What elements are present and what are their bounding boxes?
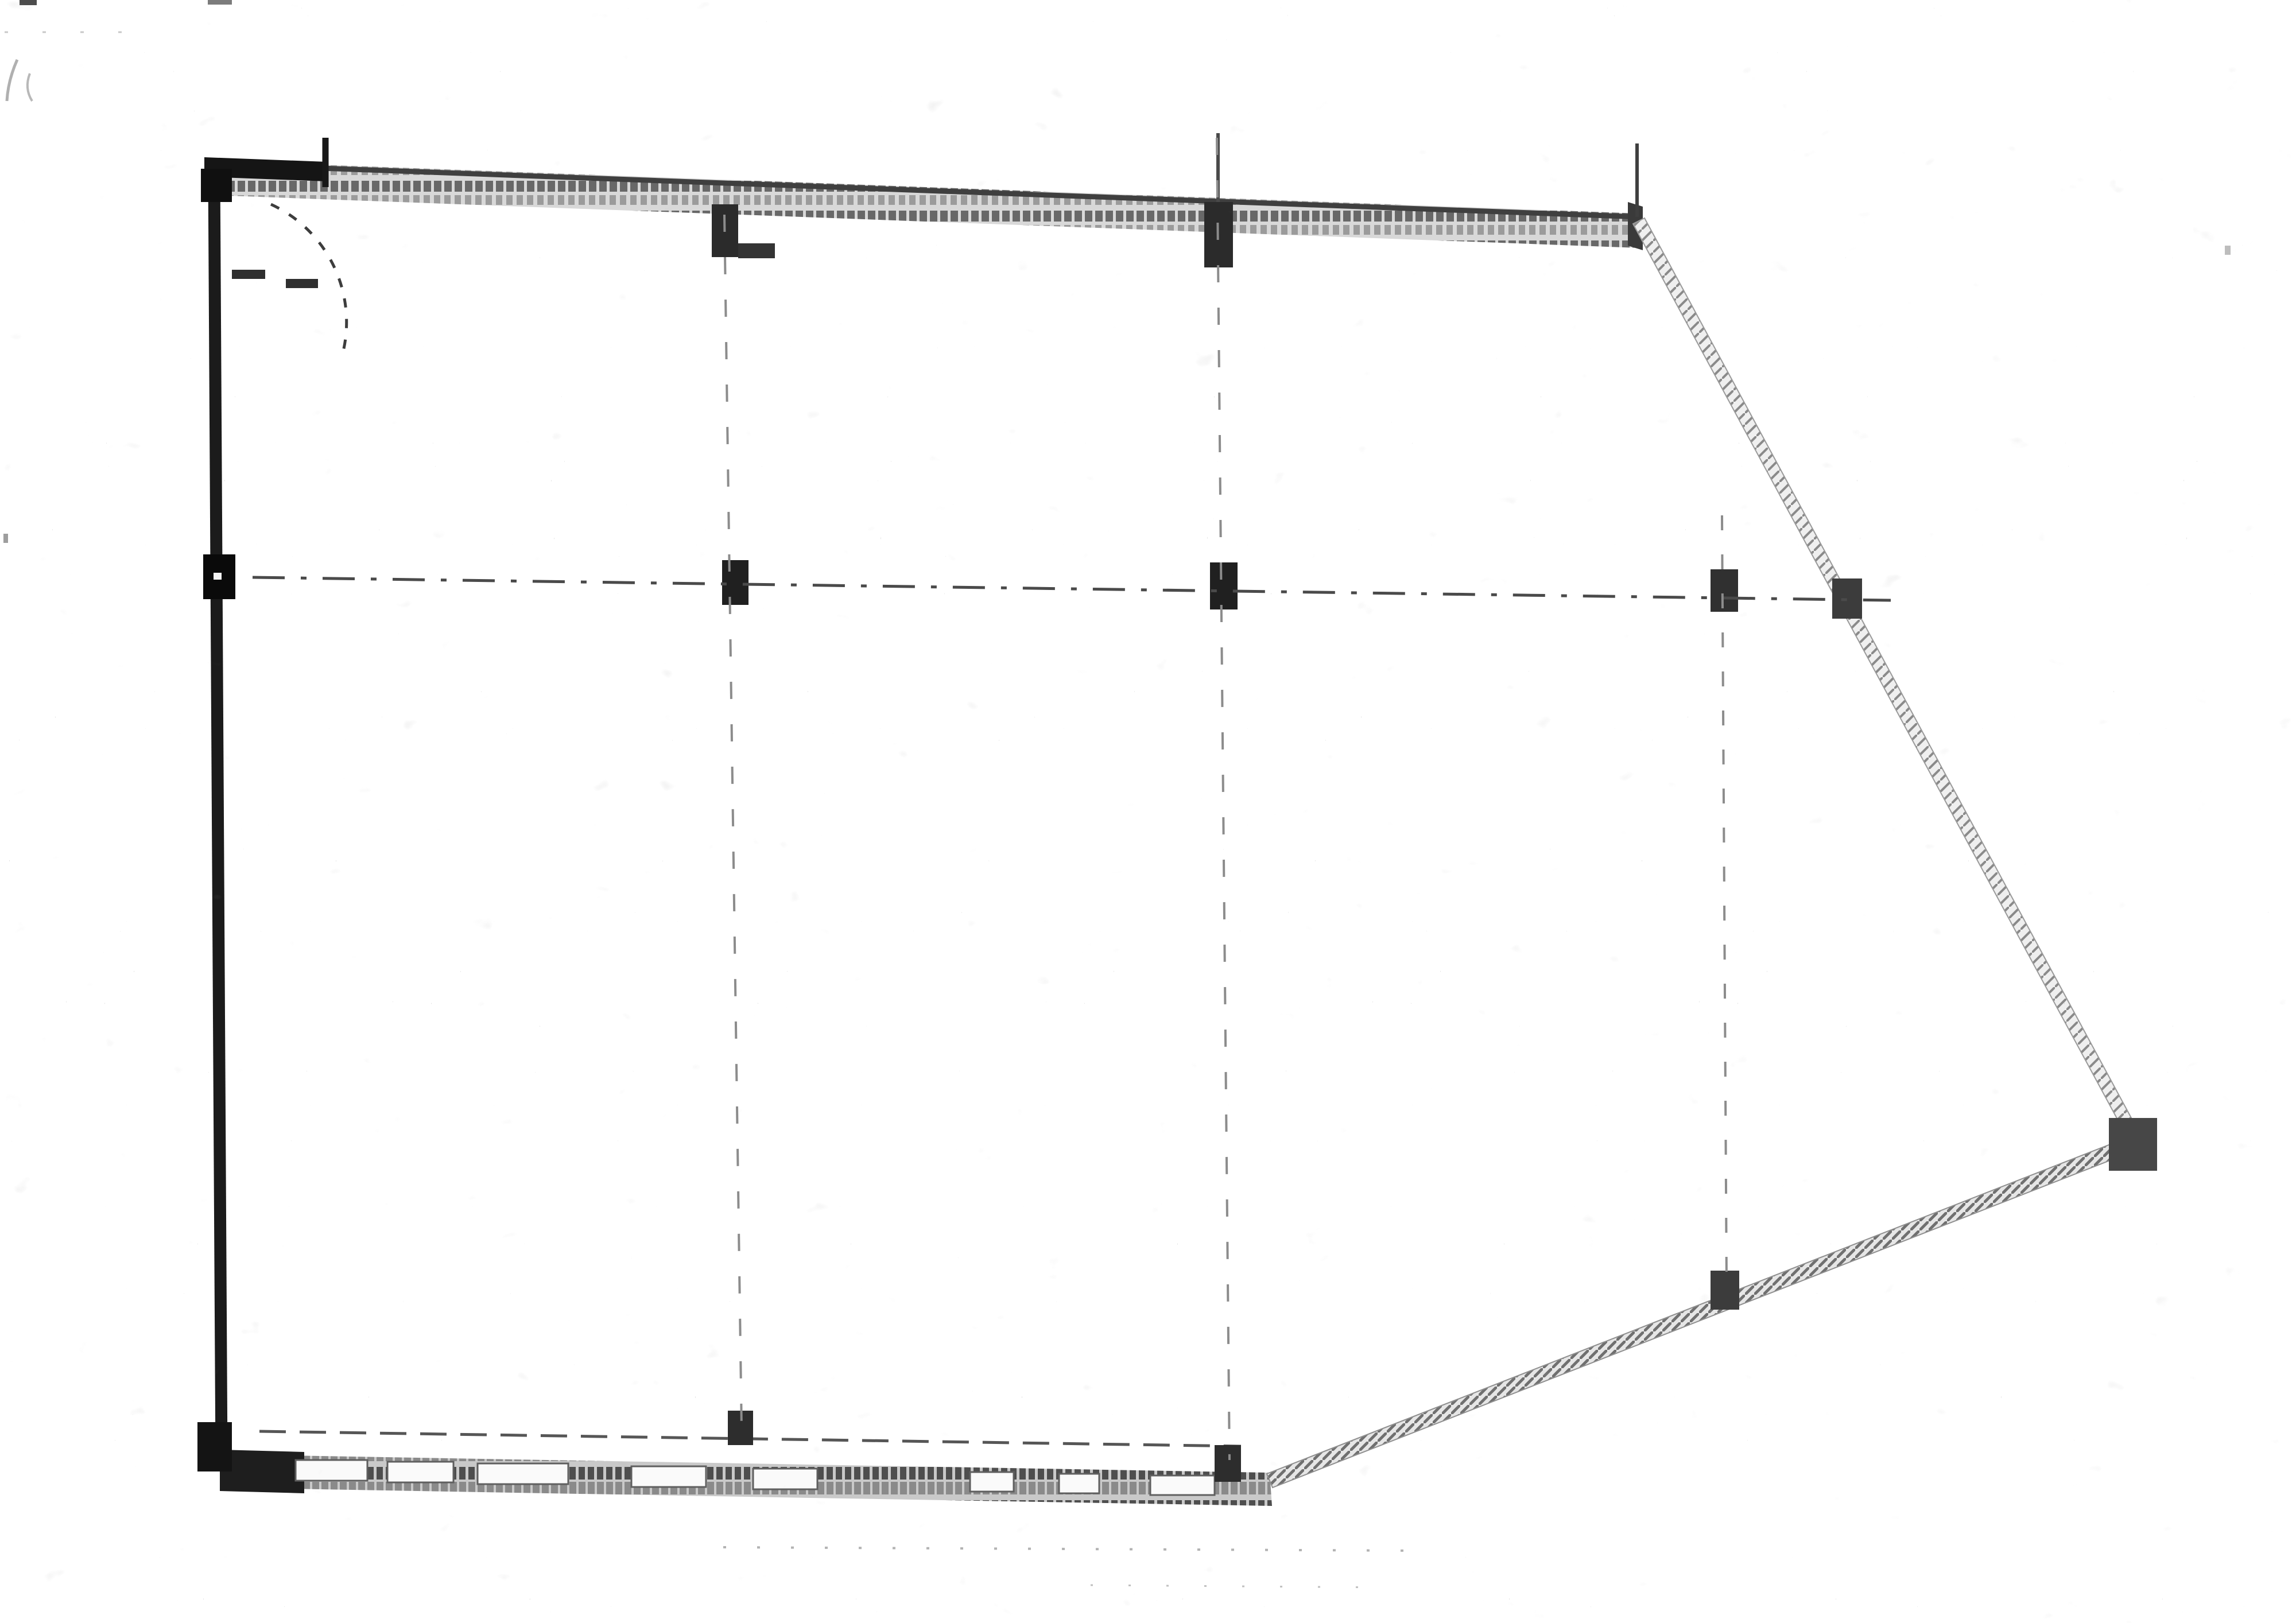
scan-speckle-noise	[0, 0, 2296, 1623]
floor-plan-svg	[0, 0, 2296, 1623]
scanned-plan-sheet	[0, 0, 2296, 1623]
